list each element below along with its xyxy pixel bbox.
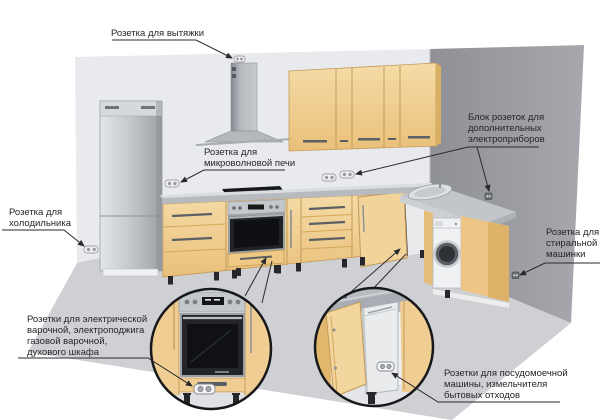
- callout-washer-outlet: Розетка для стиральной машинки: [546, 227, 599, 260]
- refrigerator: [100, 101, 162, 276]
- washer-outlet-icon: [512, 272, 519, 279]
- washing-machine: [433, 218, 461, 288]
- kitchen-diagram: Розетка для вытяжки Розетка для микровол…: [0, 0, 600, 420]
- wall-cabinets: [289, 63, 441, 151]
- inset-left-outlet-icon: [194, 384, 215, 394]
- microwave-outlet-icon: [165, 180, 179, 187]
- inset-right-outlet-icon: [377, 362, 394, 371]
- callout-cooktop-oven-outlets: Розетки для электрической варочной, элек…: [27, 314, 147, 358]
- fridge-outlet-icon: [84, 246, 98, 253]
- callout-hood-outlet: Розетка для вытяжки: [111, 28, 204, 39]
- appliance-block-outlet-icon: [485, 193, 492, 200]
- callout-appliance-block: Блок розеток для дополнительных электроп…: [468, 112, 545, 145]
- oven: [228, 200, 285, 268]
- callout-dishwasher-outlets: Розетки для посудомоечной машины, измель…: [444, 368, 568, 401]
- hood-outlet-icon: [234, 56, 245, 62]
- callout-microwave-outlet: Розетка для микроволновой печи: [204, 147, 295, 169]
- callout-fridge-outlet: Розетка для холодильника: [9, 207, 71, 229]
